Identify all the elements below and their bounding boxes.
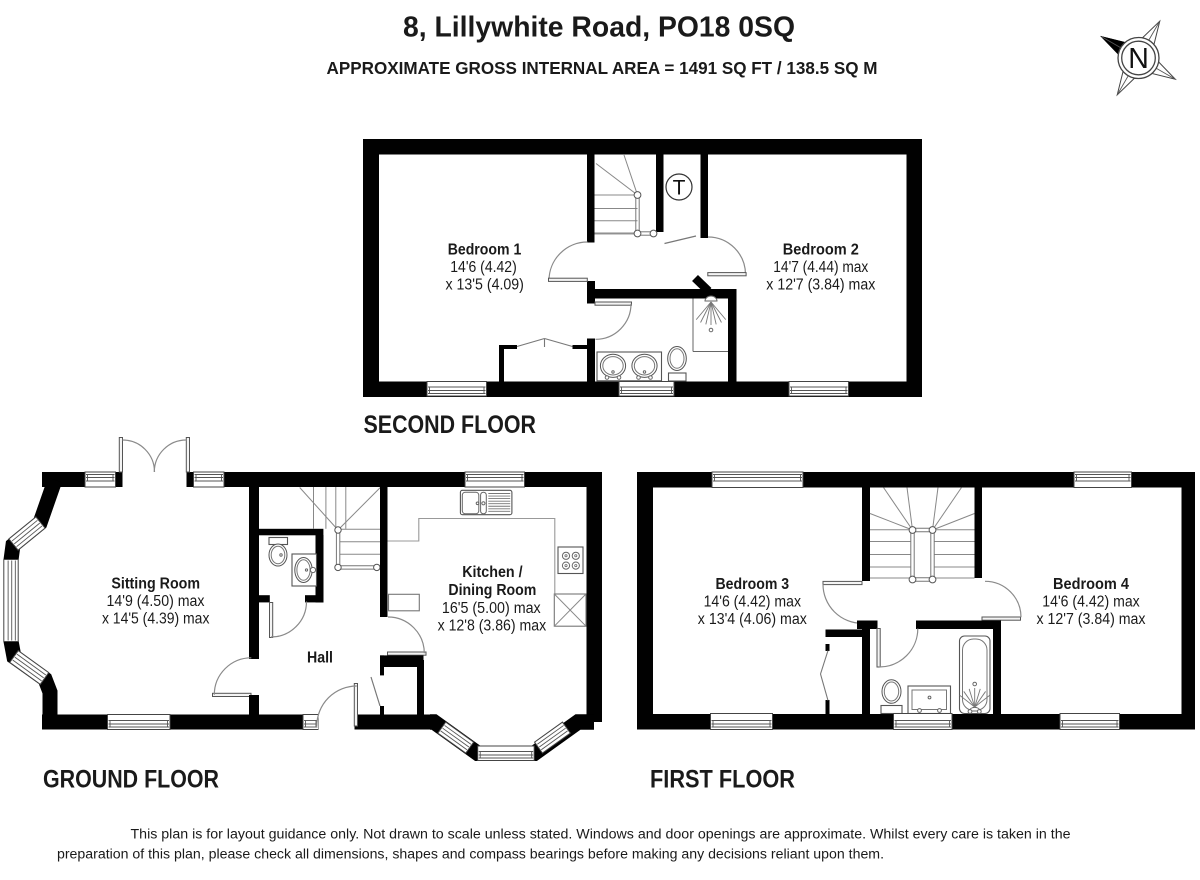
svg-text:Bedroom 2: Bedroom 2 xyxy=(783,242,859,259)
svg-text:GROUND FLOOR: GROUND FLOOR xyxy=(43,766,219,794)
svg-text:Kitchen /: Kitchen / xyxy=(462,564,523,581)
svg-text:x 14'5 (4.39) max: x 14'5 (4.39) max xyxy=(102,610,210,627)
svg-text:x 12'8 (3.86) max: x 12'8 (3.86) max xyxy=(438,618,547,635)
svg-text:Bedroom 1: Bedroom 1 xyxy=(448,242,522,259)
svg-text:14'6 (4.42) max: 14'6 (4.42) max xyxy=(1042,594,1140,611)
svg-text:FIRST FLOOR: FIRST FLOOR xyxy=(650,766,795,794)
svg-text:This plan is for layout guidan: This plan is for layout guidance only. N… xyxy=(131,827,1071,842)
svg-text:Hall: Hall xyxy=(307,650,333,667)
svg-text:Bedroom 4: Bedroom 4 xyxy=(1053,576,1129,593)
svg-text:N: N xyxy=(1128,43,1149,75)
svg-text:Bedroom 3: Bedroom 3 xyxy=(716,576,790,593)
svg-text:preparation of this plan, plea: preparation of this plan, please check a… xyxy=(57,847,884,862)
svg-text:Dining Room: Dining Room xyxy=(448,582,536,599)
svg-text:14'9 (4.50) max: 14'9 (4.50) max xyxy=(107,593,205,610)
svg-text:16'5 (5.00) max: 16'5 (5.00) max xyxy=(442,600,541,617)
svg-text:x 13'4 (4.06) max: x 13'4 (4.06) max xyxy=(698,611,807,628)
svg-text:x 13'5 (4.09): x 13'5 (4.09) xyxy=(446,276,524,293)
svg-text:14'6 (4.42): 14'6 (4.42) xyxy=(450,259,517,276)
svg-text:14'7 (4.44) max: 14'7 (4.44) max xyxy=(773,259,868,276)
svg-text:14'6 (4.42) max: 14'6 (4.42) max xyxy=(704,594,802,611)
svg-text:SECOND FLOOR: SECOND FLOOR xyxy=(364,411,537,439)
svg-text:x 12'7 (3.84) max: x 12'7 (3.84) max xyxy=(766,276,875,293)
svg-text:APPROXIMATE GROSS INTERNAL ARE: APPROXIMATE GROSS INTERNAL AREA = 1491 S… xyxy=(327,58,878,78)
svg-text:T: T xyxy=(673,177,686,200)
svg-text:8, Lillywhite Road, PO18 0SQ: 8, Lillywhite Road, PO18 0SQ xyxy=(403,12,795,44)
svg-text:x 12'7 (3.84) max: x 12'7 (3.84) max xyxy=(1037,611,1146,628)
svg-text:Sitting Room: Sitting Room xyxy=(111,576,200,593)
